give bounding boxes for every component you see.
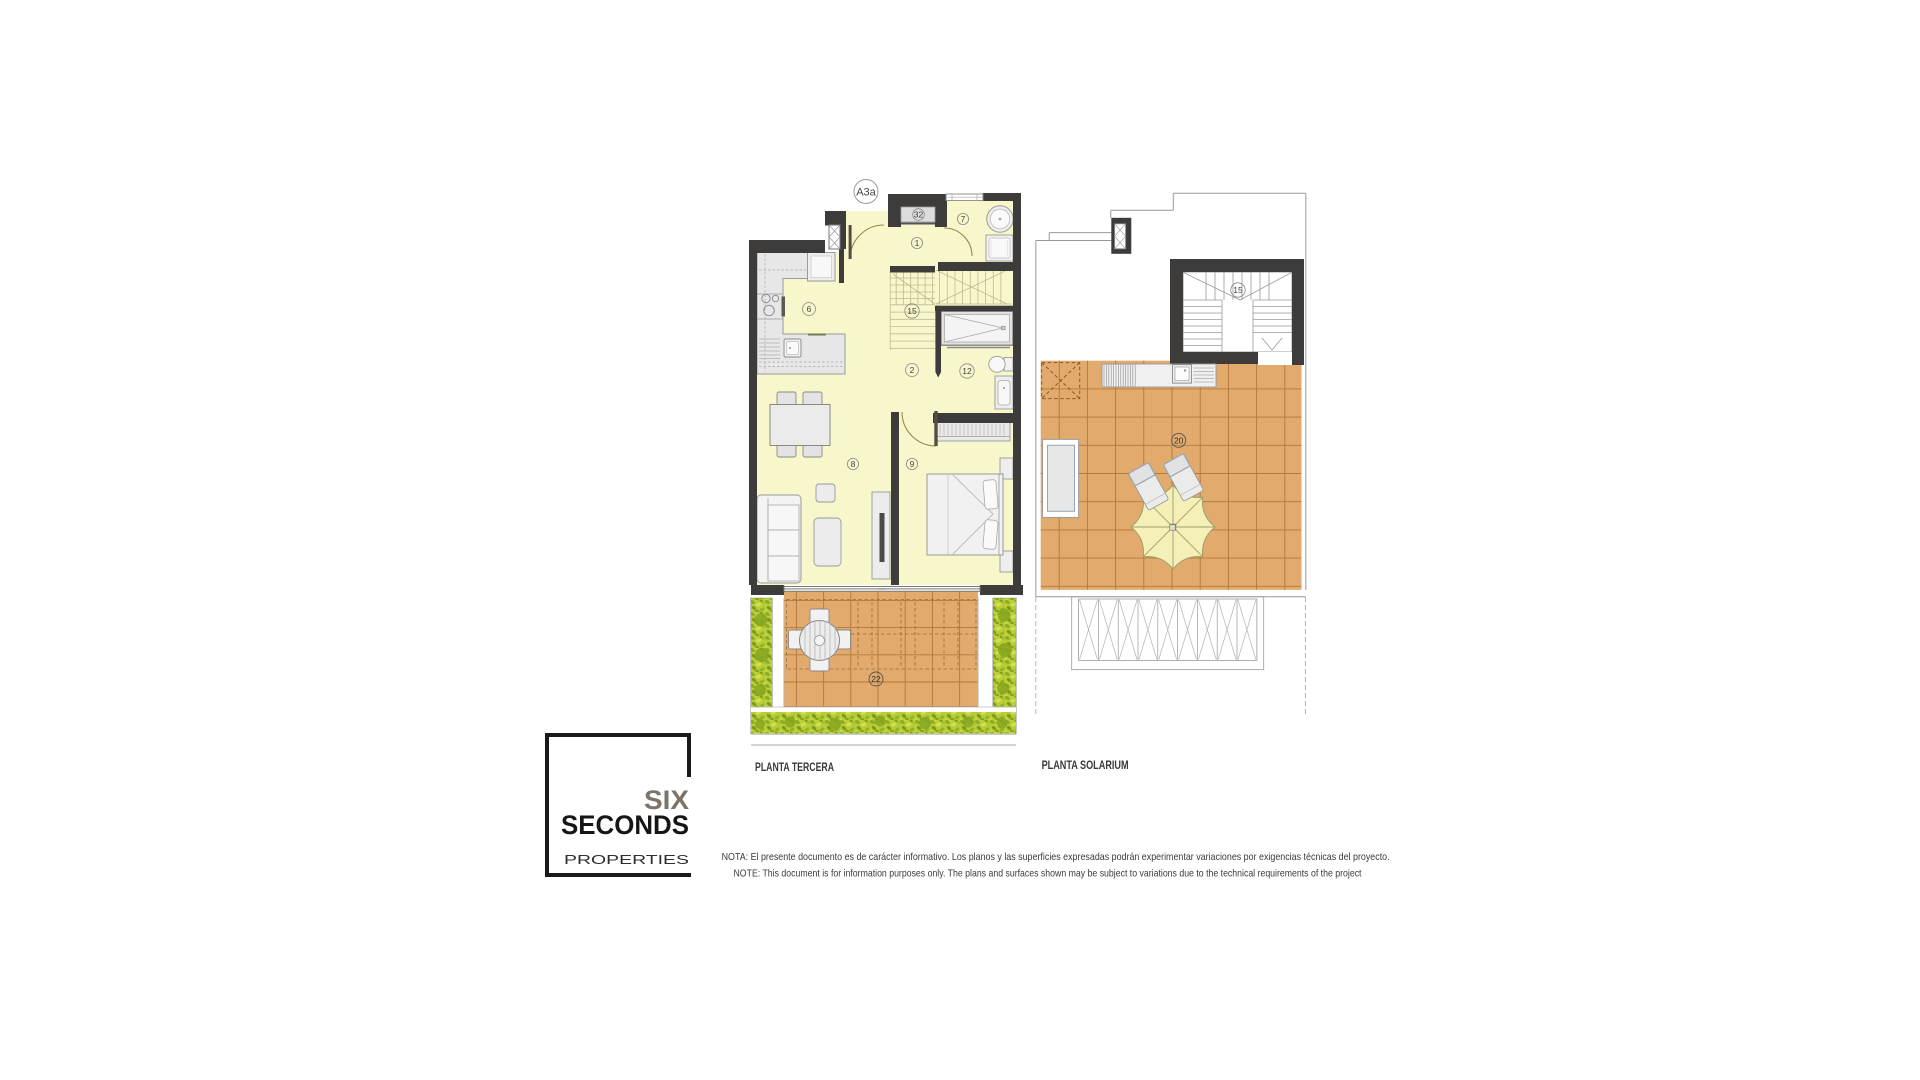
svg-text:6: 6	[807, 304, 812, 314]
svg-text:NOTA: El presente documento es: NOTA: El presente documento es de caráct…	[722, 851, 1390, 863]
svg-text:32: 32	[914, 210, 924, 220]
svg-text:9: 9	[910, 459, 915, 469]
svg-text:SECONDS: SECONDS	[561, 810, 689, 840]
svg-text:PLANTA TERCERA: PLANTA TERCERA	[755, 762, 834, 774]
svg-text:1: 1	[915, 238, 920, 248]
svg-text:A3a: A3a	[856, 187, 876, 199]
svg-text:PLANTA SOLARIUM: PLANTA SOLARIUM	[1042, 760, 1129, 772]
svg-text:NOTE: This document is for inf: NOTE: This document is for information p…	[734, 868, 1362, 880]
svg-text:15: 15	[1233, 285, 1243, 295]
svg-text:12: 12	[962, 366, 972, 376]
svg-text:PROPERTIES: PROPERTIES	[564, 852, 689, 867]
svg-text:22: 22	[871, 674, 881, 684]
svg-text:2: 2	[910, 365, 915, 375]
svg-text:8: 8	[851, 459, 856, 469]
svg-text:20: 20	[1174, 435, 1184, 445]
svg-text:15: 15	[907, 306, 917, 316]
svg-text:7: 7	[961, 214, 966, 224]
